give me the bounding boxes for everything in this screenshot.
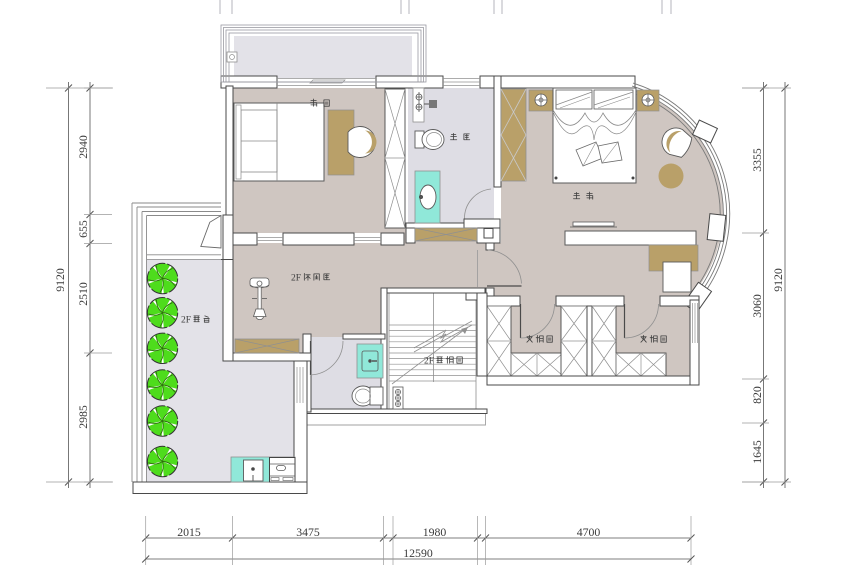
svg-text:2985: 2985 bbox=[76, 405, 90, 429]
svg-text:3355: 3355 bbox=[750, 148, 764, 172]
svg-text:2015: 2015 bbox=[177, 525, 201, 539]
svg-text:2F: 2F bbox=[291, 274, 301, 284]
svg-text:3475: 3475 bbox=[296, 525, 320, 539]
svg-text:12590: 12590 bbox=[403, 546, 433, 560]
svg-text:4700: 4700 bbox=[577, 525, 601, 539]
svg-text:2F: 2F bbox=[424, 357, 434, 367]
svg-text:2F: 2F bbox=[181, 316, 191, 326]
svg-text:1645: 1645 bbox=[750, 440, 764, 464]
svg-text:655: 655 bbox=[76, 220, 90, 238]
svg-text:3060: 3060 bbox=[750, 294, 764, 318]
svg-text:820: 820 bbox=[750, 386, 764, 404]
svg-text:1980: 1980 bbox=[423, 525, 447, 539]
svg-text:2940: 2940 bbox=[76, 135, 90, 159]
svg-text:2510: 2510 bbox=[76, 282, 90, 306]
svg-text:9120: 9120 bbox=[53, 268, 67, 292]
svg-text:9120: 9120 bbox=[771, 268, 785, 292]
